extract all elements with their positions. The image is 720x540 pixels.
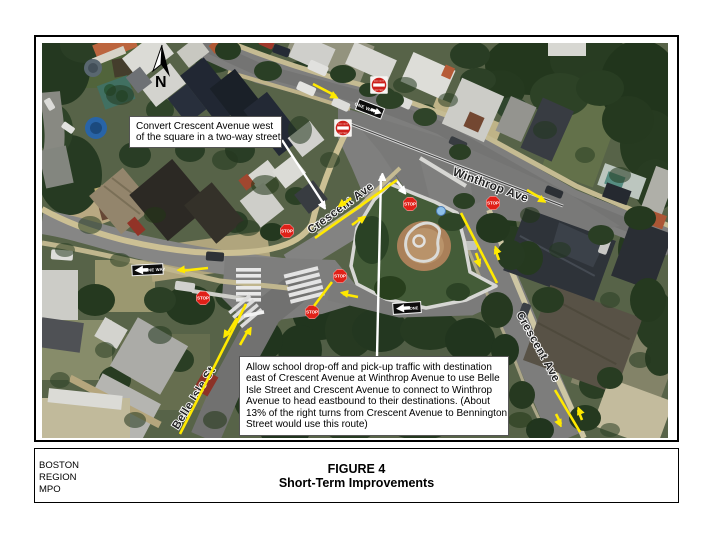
svg-text:STOP: STOP (281, 229, 293, 234)
svg-text:ENTER: ENTER (339, 131, 348, 135)
svg-text:N: N (155, 74, 167, 91)
svg-text:STOP: STOP (487, 201, 499, 206)
svg-text:STOP: STOP (404, 202, 416, 207)
svg-text:ENTER: ENTER (375, 88, 384, 92)
svg-text:STOP: STOP (306, 310, 318, 315)
svg-text:STOP: STOP (197, 296, 209, 301)
svg-text:ONE: ONE (410, 305, 419, 311)
svg-text:DO NOT: DO NOT (374, 79, 385, 83)
svg-text:DO NOT: DO NOT (338, 122, 349, 126)
svg-text:STOP: STOP (334, 274, 346, 279)
